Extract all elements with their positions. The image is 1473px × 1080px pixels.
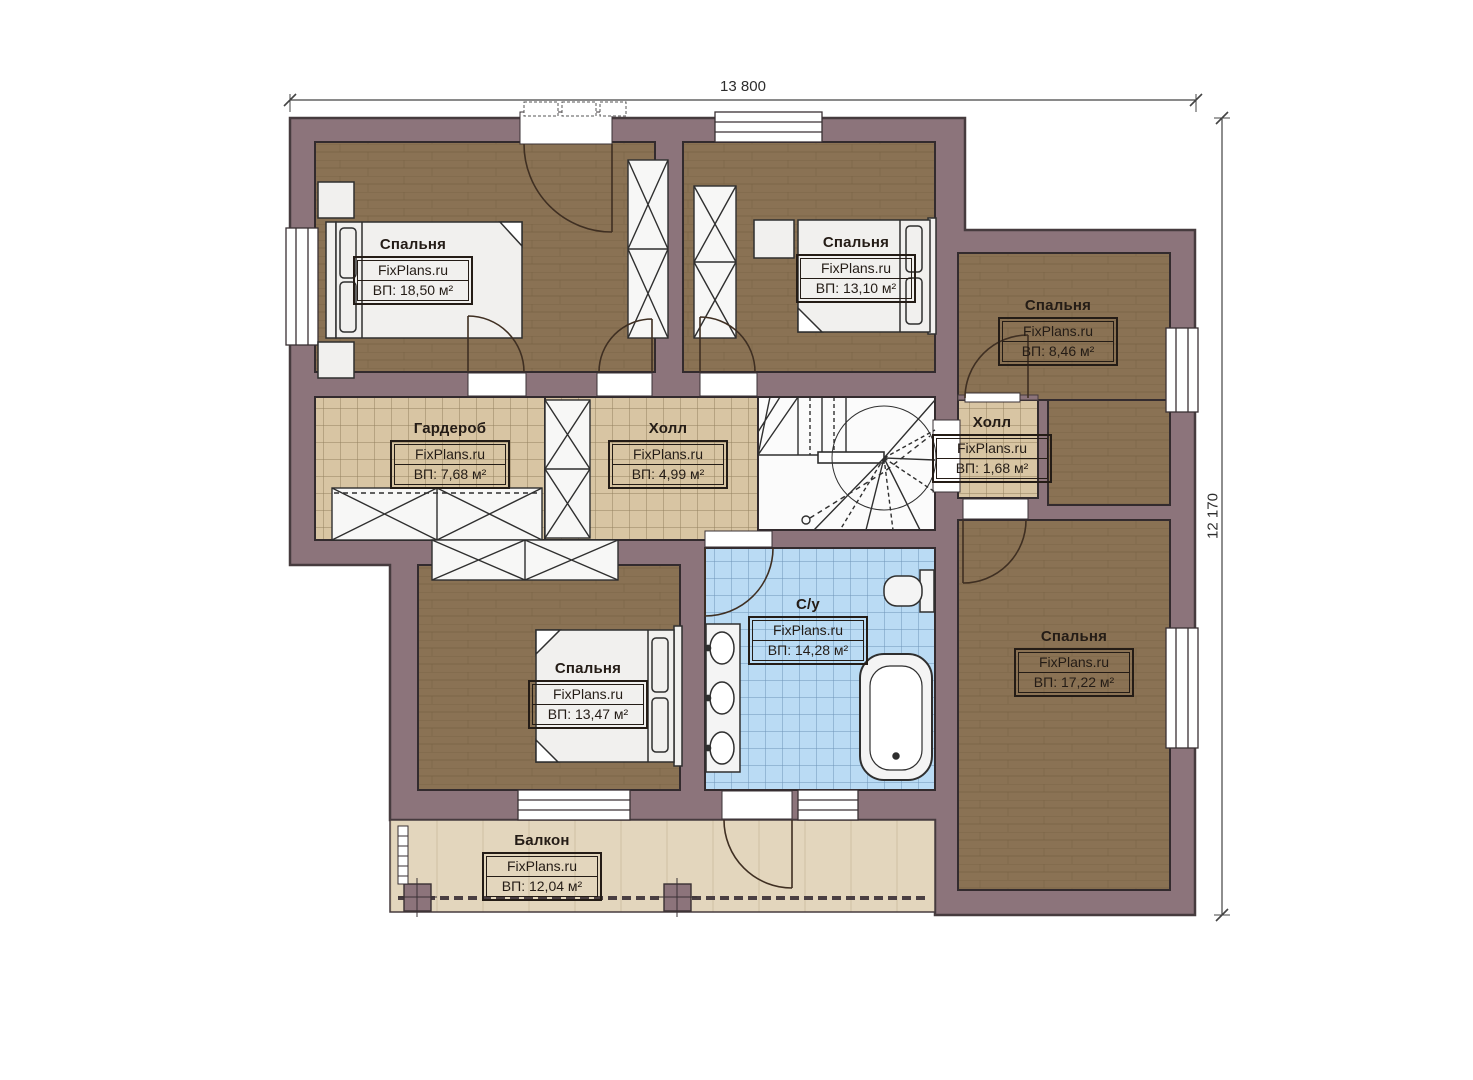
room-name: Балкон [482,832,602,849]
room-label-wardrobe: Гардероб FixPlans.ru ВП: 7,68 м² [390,420,510,489]
room-label-bedroom-top-right: Спальня FixPlans.ru ВП: 8,46 м² [998,297,1118,366]
wardrobe-cabinet [628,160,668,338]
room-brand: FixPlans.ru [486,856,598,877]
wardrobe-cabinet [694,186,736,338]
room-label-bathroom: С/у FixPlans.ru ВП: 14,28 м² [748,596,868,665]
room-name: Спальня [1014,628,1134,645]
door-opening [722,791,792,819]
room-area: ВП: 12,04 м² [486,877,598,897]
room-brand: FixPlans.ru [752,620,864,641]
window [286,228,318,345]
dimension-height-label: 12 170 [1205,493,1222,539]
room-label-bedroom-top-middle: Спальня FixPlans.ru ВП: 13,10 м² [796,234,916,303]
room-area: ВП: 17,22 м² [1018,673,1130,693]
bedroom-5-floor [958,520,1170,890]
room-brand: FixPlans.ru [612,444,724,465]
room-brand: FixPlans.ru [800,258,912,279]
room-area: ВП: 14,28 м² [752,641,864,661]
room-info-box: FixPlans.ru ВП: 1,68 м² [932,434,1052,483]
room-info-box: FixPlans.ru ВП: 17,22 м² [1014,648,1134,697]
pillow [652,638,668,692]
room-name: Холл [932,414,1052,431]
room-info-box: FixPlans.ru ВП: 7,68 м² [390,440,510,489]
nightstand [318,342,354,378]
room-brand: FixPlans.ru [1002,321,1114,342]
room-area: ВП: 13,10 м² [800,279,912,299]
room-label-hall-small: Холл FixPlans.ru ВП: 1,68 м² [932,414,1052,483]
bedroom-3-floor-ext [1048,400,1170,505]
room-name: Гардероб [390,420,510,437]
room-info-box: FixPlans.ru ВП: 18,50 м² [353,256,473,305]
room-area: ВП: 7,68 м² [394,465,506,485]
room-label-hall-main: Холл FixPlans.ru ВП: 4,99 м² [608,420,728,489]
room-label-bedroom-top-left: Спальня FixPlans.ru ВП: 18,50 м² [353,236,473,305]
room-name: Спальня [528,660,648,677]
room-info-box: FixPlans.ru ВП: 14,28 м² [748,616,868,665]
room-info-box: FixPlans.ru ВП: 4,99 м² [608,440,728,489]
room-area: ВП: 4,99 м² [612,465,724,485]
room-brand: FixPlans.ru [357,260,469,281]
door-opening [597,373,652,396]
window [518,790,630,820]
nightstand [754,220,794,258]
room-name: Холл [608,420,728,437]
room-area: ВП: 18,50 м² [357,281,469,301]
dimension-width-label: 13 800 [720,78,766,95]
window [798,790,858,820]
door-opening [468,373,526,396]
room-brand: FixPlans.ru [1018,652,1130,673]
room-brand: FixPlans.ru [532,684,644,705]
nightstand [318,182,354,218]
room-info-box: FixPlans.ru ВП: 8,46 м² [998,317,1118,366]
room-area: ВП: 8,46 м² [1002,342,1114,362]
floor-plan-drawing [0,0,1473,1080]
pillow [652,698,668,752]
dimension-line-top [284,94,1202,112]
wardrobe-cabinet [545,400,590,538]
window [1166,328,1198,412]
window [1166,628,1198,748]
room-brand: FixPlans.ru [394,444,506,465]
room-name: С/у [748,596,868,613]
room-label-bedroom-bottom-left: Спальня FixPlans.ru ВП: 13,47 м² [528,660,648,729]
room-name: Спальня [796,234,916,251]
door-opening [520,112,612,144]
room-info-box: FixPlans.ru ВП: 13,10 м² [796,254,916,303]
vent-marks [524,102,626,116]
door-opening [700,373,757,396]
door-opening [705,531,772,547]
room-area: ВП: 13,47 м² [532,705,644,725]
floor-plan: 13 800 12 170 Спальня FixPlans.ru ВП: 18… [0,0,1473,1080]
bathtub [860,654,932,780]
wardrobe-cabinet [332,488,542,540]
room-brand: FixPlans.ru [936,438,1048,459]
room-name: Спальня [353,236,473,253]
wardrobe-cabinet [432,540,618,580]
room-label-bedroom-right: Спальня FixPlans.ru ВП: 17,22 м² [1014,628,1134,697]
room-name: Спальня [998,297,1118,314]
room-info-box: FixPlans.ru ВП: 12,04 м² [482,852,602,901]
door-opening [963,499,1028,519]
room-label-balcony: Балкон FixPlans.ru ВП: 12,04 м² [482,832,602,901]
window [715,112,822,142]
door-opening [965,393,1020,402]
room-info-box: FixPlans.ru ВП: 13,47 м² [528,680,648,729]
sink-vanity [705,624,740,772]
room-area: ВП: 1,68 м² [936,459,1048,479]
